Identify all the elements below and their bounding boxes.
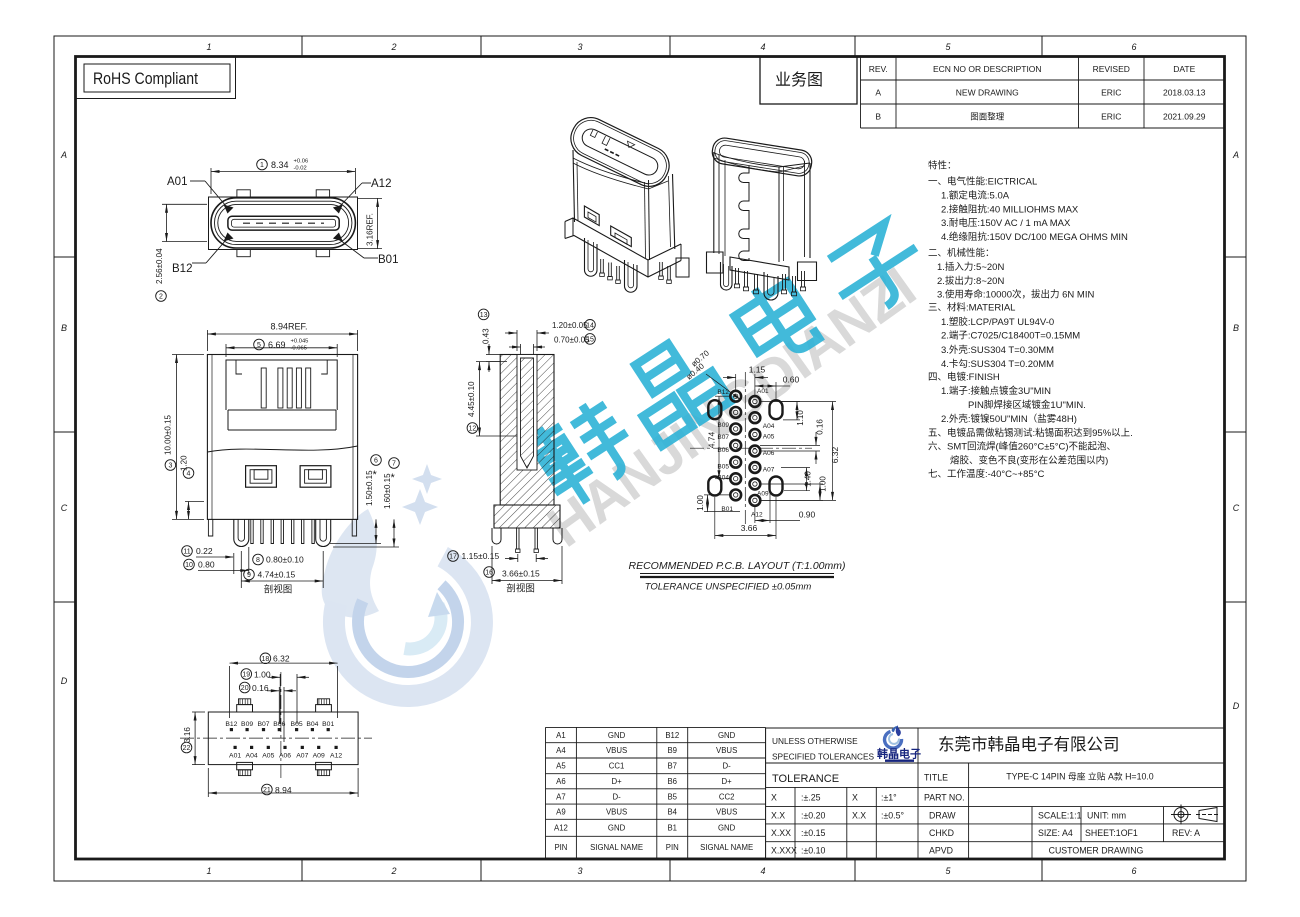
svg-text:A07: A07 [296,753,308,760]
svg-text:X.XXX: X.XXX [771,846,797,856]
svg-text:4.74: 4.74 [707,431,717,448]
svg-text:B01: B01 [378,254,398,266]
svg-text:VBUS: VBUS [606,808,627,817]
svg-text:3: 3 [577,42,582,52]
svg-text:PIN: PIN [554,843,567,852]
svg-text:TITLE: TITLE [924,773,948,783]
svg-text:1.20: 1.20 [180,455,189,471]
svg-text:B4: B4 [667,808,677,817]
svg-text:8.94REF.: 8.94REF. [270,322,307,332]
svg-text:VBUS: VBUS [716,746,737,755]
svg-text:2.端子:C7025/C18400T=0.15MM: 2.端子:C7025/C18400T=0.15MM [941,329,1080,341]
svg-text:A07: A07 [763,467,775,474]
svg-text:SIZE: A4: SIZE: A4 [1038,828,1073,838]
svg-text:APVD: APVD [929,846,953,856]
svg-text:+0.045: +0.045 [291,339,309,345]
svg-text:11: 11 [183,549,190,556]
svg-text:B1: B1 [667,824,677,833]
svg-text:4: 4 [187,471,191,478]
svg-text:3.16REF.: 3.16REF. [366,213,375,246]
svg-text:6: 6 [1131,866,1136,876]
svg-text:X: X [771,793,777,803]
svg-text:A01: A01 [229,753,241,760]
svg-text:A05: A05 [262,753,274,760]
svg-text:13: 13 [480,312,488,319]
svg-text:UNLESS OTHERWISE: UNLESS OTHERWISE [772,736,858,746]
svg-text:2.拔出力:8~20N: 2.拔出力:8~20N [937,275,1004,287]
svg-text::±1°: :±1° [881,793,897,803]
svg-text:19: 19 [242,672,250,679]
svg-text:韩晶电子: 韩晶电子 [877,747,921,761]
svg-text:1.15±0.15: 1.15±0.15 [462,551,500,561]
svg-text:3.66: 3.66 [741,523,758,533]
svg-text:B04: B04 [306,721,318,728]
svg-text:3: 3 [577,866,582,876]
svg-text:1.插入力:5~20N: 1.插入力:5~20N [937,261,1004,273]
svg-text:D: D [1233,701,1240,711]
svg-text:A5: A5 [556,762,566,771]
svg-text:熔胶、变色不良(变形在公差范围以内): 熔胶、变色不良(变形在公差范围以内) [950,455,1108,467]
svg-text:10: 10 [185,562,193,569]
svg-text:GND: GND [608,824,626,833]
svg-text:3.66±0.15: 3.66±0.15 [502,569,540,579]
svg-text:ERIC: ERIC [1101,112,1121,122]
svg-text:2.外壳:镀镍50U"MIN（盐雾48H): 2.外壳:镀镍50U"MIN（盐雾48H) [941,413,1077,425]
svg-text:1.00: 1.00 [696,495,705,511]
svg-text:4.卡勾:SUS304 T=0.20MM: 4.卡勾:SUS304 T=0.20MM [941,358,1054,370]
svg-text:6.69: 6.69 [268,340,286,350]
svg-text:D+: D+ [722,777,733,786]
svg-text:14: 14 [586,322,594,329]
svg-text:图面整理: 图面整理 [970,112,1005,122]
svg-text:CHKD: CHKD [929,828,954,838]
svg-text:特性：: 特性： [928,159,957,171]
svg-text:UNIT: mm: UNIT: mm [1087,811,1126,821]
svg-text:4.74±0.15: 4.74±0.15 [258,570,296,580]
svg-text:业务图: 业务图 [775,71,823,89]
svg-text:D: D [61,676,68,686]
svg-text:SCALE:1:1: SCALE:1:1 [1038,811,1082,821]
svg-text:B: B [875,112,881,122]
svg-text:ECN NO OR DESCRIPTION: ECN NO OR DESCRIPTION [933,64,1042,74]
svg-text:+0.06: +0.06 [294,159,309,165]
svg-text:GND: GND [718,824,736,833]
svg-text:0.80±0.10: 0.80±0.10 [266,555,304,565]
svg-text:4: 4 [760,866,765,876]
svg-text:PIN脚焊接区域镀金1U"MIN.: PIN脚焊接区域镀金1U"MIN. [968,399,1086,411]
svg-text:0.16: 0.16 [816,419,825,435]
svg-text:22: 22 [183,745,191,752]
svg-text:三、材料:MATERIAL: 三、材料:MATERIAL [928,301,1015,313]
svg-text:D-: D- [723,762,732,771]
svg-text:D-: D- [612,792,621,801]
svg-text:-0.02: -0.02 [294,166,307,172]
svg-text:D+: D+ [612,777,623,786]
svg-text:A9: A9 [556,808,566,817]
svg-text:PART NO.: PART NO. [924,793,965,803]
svg-text:B12: B12 [665,731,679,740]
svg-text:DRAW: DRAW [929,811,956,821]
svg-text:4: 4 [760,42,765,52]
svg-text:1.塑胶:LCP/PA9T UL94V-0: 1.塑胶:LCP/PA9T UL94V-0 [941,316,1054,328]
svg-text:一、电气性能:EICTRICAL: 一、电气性能:EICTRICAL [928,176,1037,188]
svg-text:6.32: 6.32 [830,446,840,463]
svg-text:X.XX: X.XX [771,828,791,838]
svg-text:七、工作温度:-40°C~+85°C: 七、工作温度:-40°C~+85°C [928,468,1044,480]
svg-text:3.耐电压:150V AC / 1 mA MAX: 3.耐电压:150V AC / 1 mA MAX [941,217,1071,229]
svg-text:剖视图: 剖视图 [506,583,535,595]
svg-text:REVISED: REVISED [1093,64,1130,74]
svg-text:东莞市韩晶电子有限公司: 东莞市韩晶电子有限公司 [938,735,1120,754]
svg-text:6: 6 [374,458,378,465]
svg-text:A09: A09 [757,491,769,498]
svg-text:20: 20 [241,685,249,692]
svg-text:TOLERANCE: TOLERANCE [772,773,839,785]
svg-text:DATE: DATE [1173,64,1195,74]
svg-text:0.60: 0.60 [783,375,800,385]
svg-text::±0.5°: :±0.5° [881,811,904,821]
svg-text:B09: B09 [241,721,253,728]
svg-text:6.32: 6.32 [273,654,290,664]
svg-text:A12: A12 [554,824,568,833]
svg-text:18: 18 [262,656,270,663]
svg-text:RECOMMENDED P.C.B. LAYOUT: RECOMMENDED P.C.B. LAYOUT (T:1.00mm) [628,560,845,572]
svg-text:B12: B12 [225,721,237,728]
svg-text:A7: A7 [556,792,566,801]
svg-text:2: 2 [159,294,163,301]
svg-text:剖视图: 剖视图 [264,584,293,596]
svg-text:A: A [1232,150,1239,160]
svg-text:0.43: 0.43 [482,328,491,344]
svg-text:3: 3 [168,463,172,470]
svg-text:B: B [1233,323,1239,333]
svg-text:A: A [875,88,881,98]
svg-text:A04: A04 [246,753,258,760]
svg-text:SHEET:1OF1: SHEET:1OF1 [1085,828,1138,838]
svg-text:A05: A05 [763,434,775,441]
svg-text:8.94: 8.94 [275,785,292,795]
svg-text:2018.03.13: 2018.03.13 [1163,88,1206,98]
svg-text:1: 1 [260,162,264,169]
svg-text:A04: A04 [763,423,775,430]
svg-text:1.额定电流:5.0A: 1.额定电流:5.0A [941,189,1010,201]
svg-text::±0.10: :±0.10 [801,846,826,856]
svg-text:六、SMT回流焊(峰值260°C±5°C)不能起泡、: 六、SMT回流焊(峰值260°C±5°C)不能起泡、 [928,441,1116,453]
svg-text:17: 17 [449,554,457,561]
svg-text:7: 7 [392,461,396,468]
svg-text:NEW DRAWING: NEW DRAWING [956,88,1019,98]
svg-text:2: 2 [390,42,396,52]
svg-text:5: 5 [257,342,261,349]
svg-text:X: X [852,793,858,803]
svg-text:五、电镀品需做粘锡测试:粘锡面积达到95%以上.: 五、电镀品需做粘锡测试:粘锡面积达到95%以上. [928,427,1133,439]
svg-text:X.X: X.X [771,811,785,821]
svg-text:VBUS: VBUS [606,746,627,755]
svg-text::±0.20: :±0.20 [801,811,826,821]
svg-text:8: 8 [256,557,260,564]
svg-text:3.16: 3.16 [183,727,192,743]
svg-text:TOLERANCE UNSPECIFIED ±0.05m: TOLERANCE UNSPECIFIED ±0.05mm [645,582,812,593]
svg-text:REV: A: REV: A [1172,828,1200,838]
svg-text:8.34: 8.34 [271,160,289,170]
svg-text:VBUS: VBUS [716,808,737,817]
svg-text:GND: GND [608,731,626,740]
svg-text:1.20±0.05: 1.20±0.05 [552,321,588,330]
svg-text:A: A [60,150,67,160]
svg-text:A01: A01 [167,176,187,188]
svg-text:B5: B5 [667,792,677,801]
svg-text:SIGNAL NAME: SIGNAL NAME [700,843,753,852]
svg-text:B7: B7 [667,762,677,771]
svg-text:A09: A09 [313,753,325,760]
svg-text:B6: B6 [667,777,677,786]
svg-text:RoHS Compliant: RoHS Compliant [93,69,198,88]
svg-text::±.25: :±.25 [801,793,821,803]
svg-text:ERIC: ERIC [1101,88,1121,98]
svg-text:-0.065: -0.065 [291,346,307,352]
svg-text:B07: B07 [257,721,269,728]
svg-text:A12: A12 [751,512,763,519]
svg-text:四、电镀:FINISH: 四、电镀:FINISH [928,371,1000,383]
svg-text:6: 6 [1131,42,1136,52]
svg-text:2: 2 [390,866,396,876]
svg-text:0.80: 0.80 [198,560,215,570]
svg-text:1.00: 1.00 [254,670,271,680]
svg-text:2.接触阻抗:40 MILLIOHMS MAX: 2.接触阻抗:40 MILLIOHMS MAX [941,203,1079,215]
svg-text:1.端子:接触点镀金3U"MIN: 1.端子:接触点镀金3U"MIN [941,385,1051,397]
svg-text:X.X: X.X [852,811,866,821]
svg-text:1.60±0.15: 1.60±0.15 [383,473,392,509]
svg-text:A12: A12 [330,753,342,760]
svg-text:C: C [1233,503,1240,513]
svg-text:A4: A4 [556,746,566,755]
svg-text:B12: B12 [172,263,192,275]
svg-text:12: 12 [469,426,477,433]
svg-text:5: 5 [945,866,951,876]
svg-text:1.50±0.15: 1.50±0.15 [365,470,374,506]
svg-text:B: B [61,323,67,333]
svg-text:REV.: REV. [869,64,888,74]
svg-text:二、机械性能：: 二、机械性能： [928,247,995,259]
svg-text:1.15: 1.15 [749,365,766,375]
svg-text::±0.15: :±0.15 [801,828,826,838]
svg-text:CC2: CC2 [719,792,735,801]
svg-text:CC1: CC1 [609,762,625,771]
svg-text:CUSTOMER DRAWING: CUSTOMER DRAWING [1049,846,1144,856]
svg-text:3.外壳:SUS304 T=0.30MM: 3.外壳:SUS304 T=0.30MM [941,344,1054,356]
svg-text:9: 9 [247,572,251,579]
svg-text:10.00±0.15: 10.00±0.15 [164,414,173,455]
svg-text:SIGNAL NAME: SIGNAL NAME [590,843,643,852]
svg-text:3.使用寿命:10000次，拔出力 6N MIN: 3.使用寿命:10000次，拔出力 6N MIN [937,288,1094,300]
svg-text:1: 1 [206,42,211,52]
svg-text:15: 15 [586,336,594,343]
svg-text:4.绝缘阻抗:150V DC/100 MEGA OHM: 4.绝缘阻抗:150V DC/100 MEGA OHMS MIN [941,231,1128,243]
svg-text:0.16: 0.16 [252,683,269,693]
svg-text:A6: A6 [556,777,566,786]
svg-text:SPECIFIED TOLERANCES: SPECIFIED TOLERANCES [772,752,875,762]
svg-text:B9: B9 [667,746,677,755]
svg-text:A01: A01 [757,388,769,395]
svg-text:2021.09.29: 2021.09.29 [1163,112,1206,122]
svg-text:5: 5 [945,42,951,52]
svg-text:A12: A12 [371,178,391,190]
svg-text:1: 1 [206,866,211,876]
svg-text:TYPE-C 14PIN 母座 立贴 A款 H=: TYPE-C 14PIN 母座 立贴 A款 H=10.0 [1006,771,1153,782]
svg-text:0.22: 0.22 [196,546,213,556]
svg-text:A06: A06 [279,753,291,760]
svg-text:1.40: 1.40 [804,471,813,487]
svg-text:A1: A1 [556,731,566,740]
svg-text:C: C [61,503,68,513]
svg-text:0.90: 0.90 [799,510,816,520]
svg-text:4.45±0.10: 4.45±0.10 [467,381,476,417]
svg-text:GND: GND [718,731,736,740]
svg-text:PIN: PIN [666,843,679,852]
svg-text:B01: B01 [322,721,334,728]
svg-text:2.56±0.04: 2.56±0.04 [155,248,164,284]
